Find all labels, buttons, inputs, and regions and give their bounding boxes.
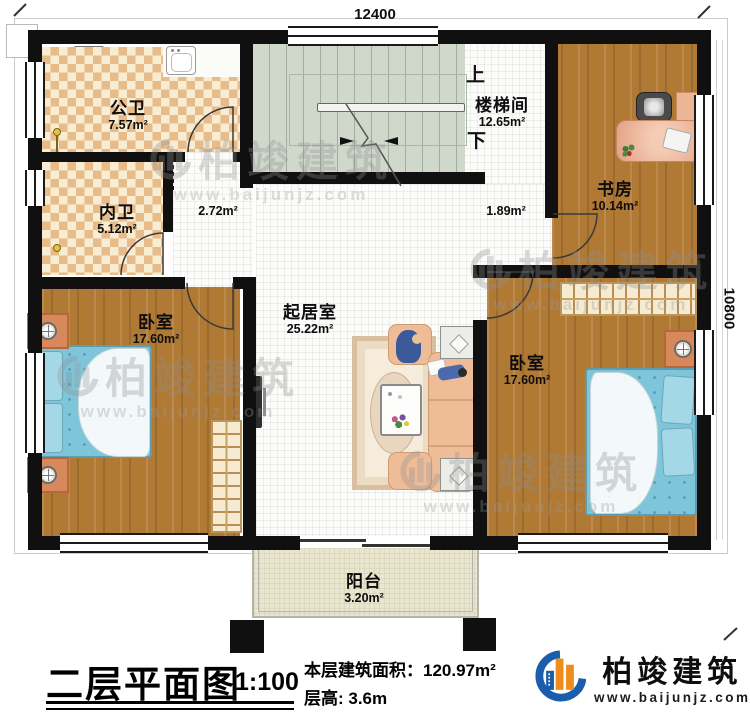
window-left-privbath <box>25 170 45 206</box>
sofa-seat <box>388 452 432 490</box>
plan-title: 二层平面图 <box>46 654 241 708</box>
wall-bedroomright-left-stub <box>473 265 487 278</box>
wall-bath-divider-stub <box>233 152 253 162</box>
floor-drain-icon <box>53 128 61 136</box>
dimension-top: 12400 <box>340 6 410 23</box>
title-underline <box>46 701 294 704</box>
side-table-icon <box>440 458 475 491</box>
room-label-stairwell: 楼梯间 12.65m² <box>458 96 546 129</box>
room-label-public-bath: 公卫 7.57m² <box>88 99 168 132</box>
stair-handrail <box>317 103 465 112</box>
wall-bath-divider <box>28 152 185 162</box>
wall-bedroomleft-right <box>243 277 256 536</box>
pillow-icon <box>661 427 695 477</box>
wall-privbath-right <box>163 162 173 232</box>
pillow-icon <box>660 375 695 425</box>
person-head <box>412 334 422 344</box>
balcony-column-left <box>230 620 264 653</box>
duvet-left <box>78 348 150 457</box>
washing-machine-icon <box>166 46 196 75</box>
window-right-study <box>694 95 714 205</box>
right-sill-line <box>716 40 717 540</box>
plan-scale: 1:100 <box>235 668 299 697</box>
title-underline-2 <box>46 708 294 710</box>
side-table-icon <box>440 326 475 359</box>
wall-bedroomleft-top <box>28 277 185 289</box>
floor-height-text: 层高: 3.6m <box>304 684 387 709</box>
window-left-bath <box>25 62 45 138</box>
wall-bedroomright-left <box>473 320 487 536</box>
window-left-bedroom <box>25 353 45 453</box>
brand-logo-icon <box>534 646 586 706</box>
room-label-balcony: 阳台 3.20m² <box>324 572 404 605</box>
brand-logo: 柏竣建筑 www.baijunjz.com <box>534 646 750 706</box>
room-label-bedroom-left: 卧室 17.60m² <box>116 313 196 346</box>
wall-stairs-bottom <box>253 172 485 184</box>
brand-website: www.baijunjz.com <box>594 690 750 705</box>
stairs-down-label: 下 <box>467 126 486 153</box>
coffee-table-icon <box>380 384 422 436</box>
wall-bath-right <box>240 30 253 188</box>
wall-study-bottom <box>487 265 711 278</box>
wardrobe-icon <box>211 420 242 533</box>
sliding-door <box>300 538 430 548</box>
dimension-right: 10800 <box>721 274 738 344</box>
floor-area-text: 本层建筑面积：120.97m² <box>304 656 496 681</box>
stairs-up-label: 上 <box>466 60 485 87</box>
area-label-stair-landing: 1.89m² <box>470 204 542 218</box>
brand-name: 柏竣建筑 <box>602 647 742 691</box>
wall-stairwell-right <box>545 30 558 218</box>
plant-icon <box>621 143 636 158</box>
floor-plan: 柏竣建筑 www.baijunjz.com 柏竣建筑 www.baijunjz.… <box>0 0 750 723</box>
room-label-living-room: 起居室 25.22m² <box>270 303 350 336</box>
person-head <box>458 368 467 377</box>
room-label-bedroom-right: 卧室 17.60m² <box>487 354 567 387</box>
window-right-bedroom <box>694 330 714 415</box>
office-chair-icon <box>636 92 672 122</box>
room-label-study: 书房 10.14m² <box>575 180 655 213</box>
duvet-right <box>590 372 658 514</box>
window-bottom-bedroomright <box>518 533 668 553</box>
tv-stand <box>263 388 266 416</box>
area-label-hallway: 2.72m² <box>180 204 256 218</box>
balcony-column-right <box>463 618 496 651</box>
room-label-private-bath: 内卫 5.12m² <box>77 203 157 236</box>
floor-drain-icon <box>53 244 61 252</box>
window-bottom-bedroomleft <box>60 533 208 553</box>
window-top-stairs <box>288 26 438 46</box>
wardrobe-icon <box>560 282 697 316</box>
